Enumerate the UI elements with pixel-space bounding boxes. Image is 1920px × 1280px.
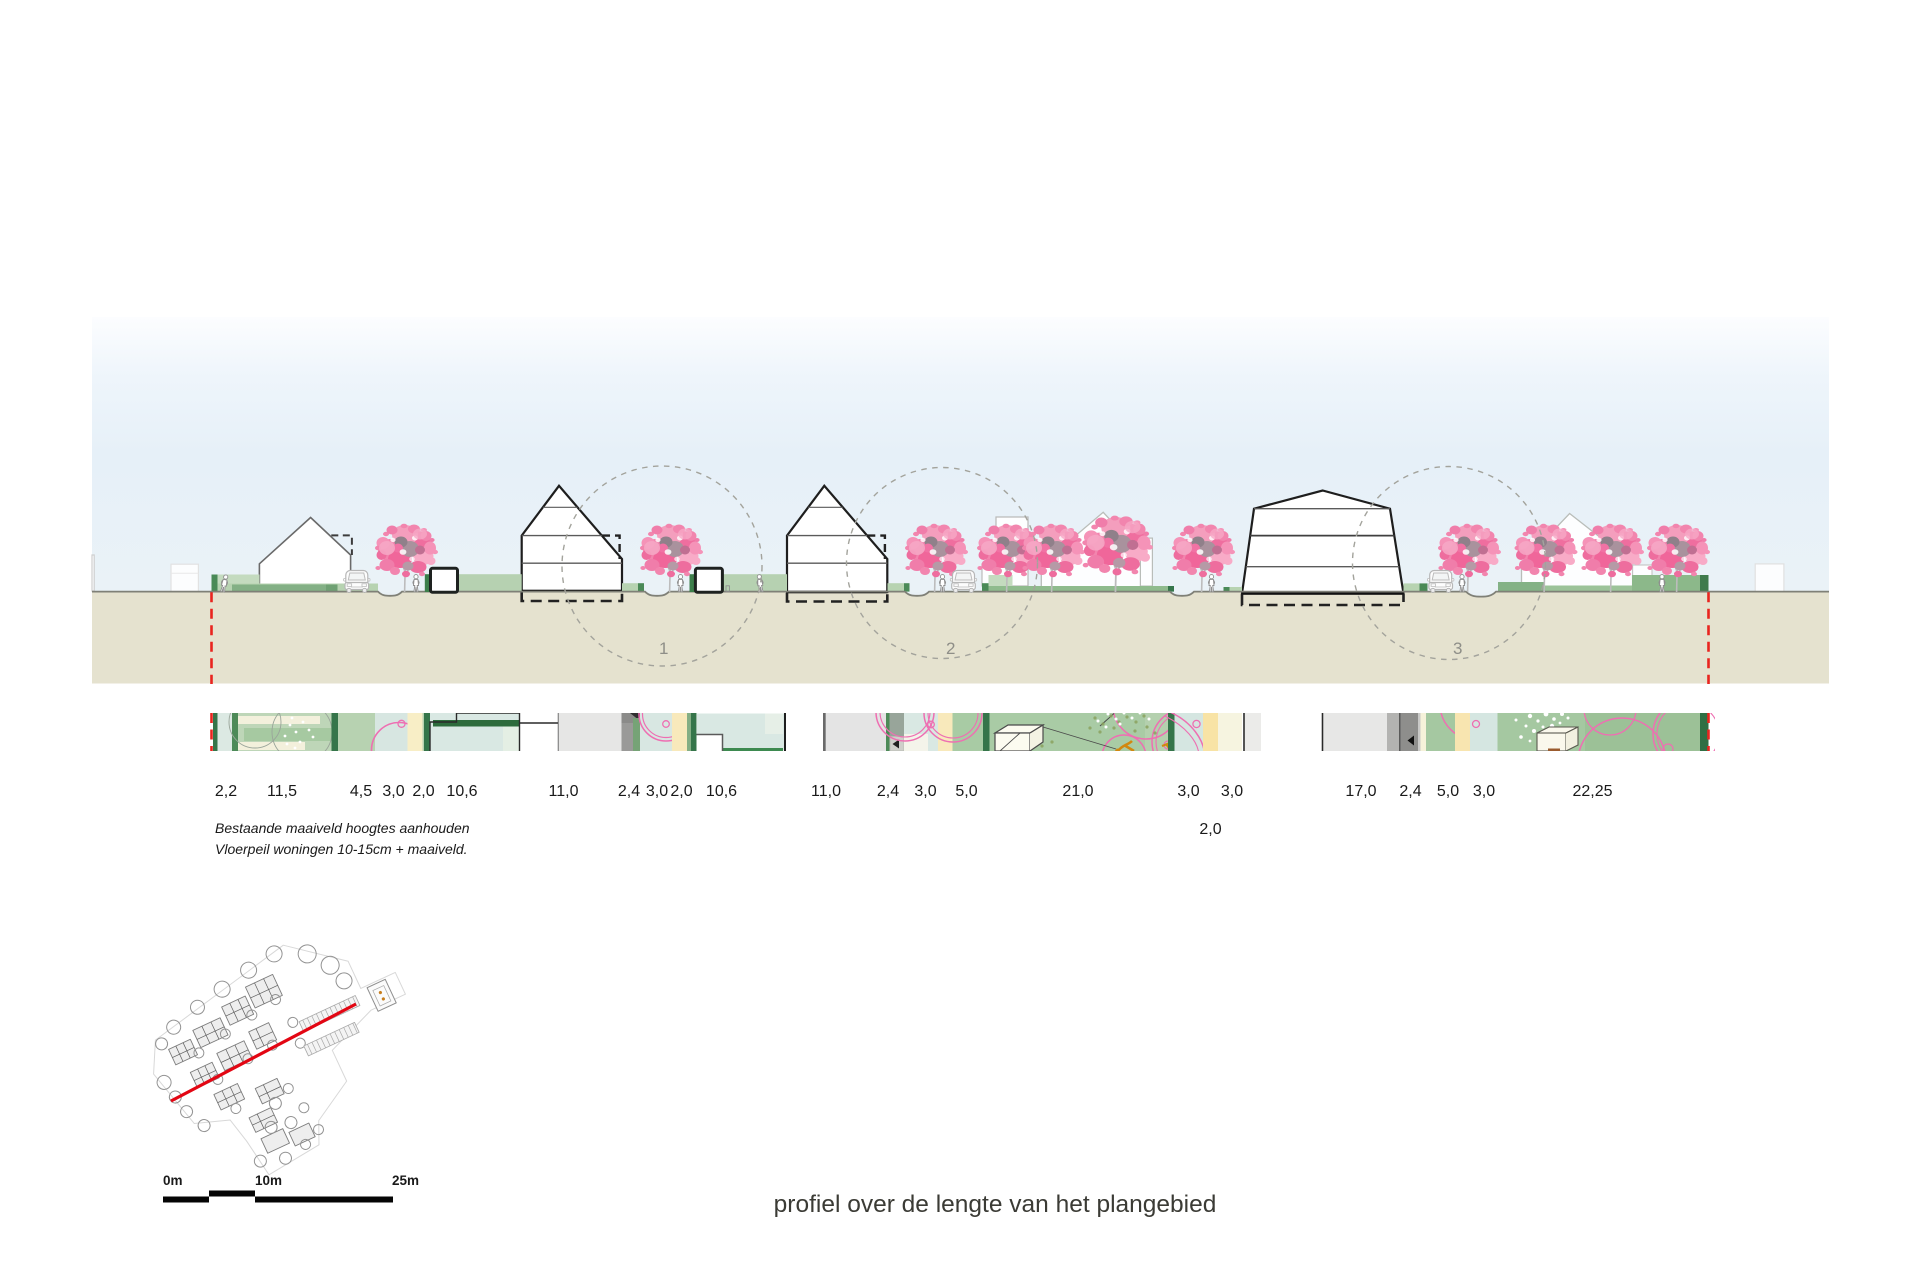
- svg-text:2,4: 2,4: [1399, 783, 1421, 800]
- svg-text:2,2: 2,2: [215, 783, 237, 800]
- svg-text:3,0: 3,0: [382, 783, 404, 800]
- svg-text:10m: 10m: [255, 1173, 282, 1188]
- svg-text:0m: 0m: [163, 1173, 183, 1188]
- svg-text:1: 1: [659, 639, 668, 658]
- svg-text:2,0: 2,0: [1199, 821, 1221, 838]
- svg-text:5,0: 5,0: [955, 783, 977, 800]
- svg-text:11,0: 11,0: [811, 783, 841, 800]
- svg-text:3,0: 3,0: [914, 783, 936, 800]
- svg-text:3,0: 3,0: [646, 783, 668, 800]
- svg-text:10,6: 10,6: [706, 783, 737, 800]
- svg-text:17,0: 17,0: [1345, 783, 1376, 800]
- svg-text:3: 3: [1453, 639, 1462, 658]
- svg-text:2: 2: [946, 639, 955, 658]
- svg-text:4,5: 4,5: [350, 783, 372, 800]
- svg-text:2,0: 2,0: [412, 783, 434, 800]
- svg-text:5,0: 5,0: [1437, 783, 1459, 800]
- svg-text:2,0: 2,0: [670, 783, 692, 800]
- svg-text:3,0: 3,0: [1177, 783, 1199, 800]
- svg-text:profiel over de lengte van het: profiel over de lengte van het plangebie…: [774, 1191, 1217, 1218]
- svg-text:10,6: 10,6: [446, 783, 477, 800]
- svg-text:11,0: 11,0: [549, 783, 579, 800]
- svg-text:3,0: 3,0: [1221, 783, 1243, 800]
- svg-text:Vloerpeil woningen 10-15cm + m: Vloerpeil woningen 10-15cm + maaiveld.: [215, 841, 468, 857]
- svg-text:11,5: 11,5: [267, 783, 297, 800]
- svg-text:2,4: 2,4: [618, 783, 640, 800]
- svg-text:3,0: 3,0: [1473, 783, 1495, 800]
- svg-text:21,0: 21,0: [1062, 783, 1093, 800]
- svg-text:2,4: 2,4: [877, 783, 899, 800]
- svg-text:Bestaande maaiveld hoogtes aan: Bestaande maaiveld hoogtes aanhouden: [215, 820, 470, 836]
- svg-text:25m: 25m: [392, 1173, 419, 1188]
- svg-text:22,25: 22,25: [1572, 783, 1612, 800]
